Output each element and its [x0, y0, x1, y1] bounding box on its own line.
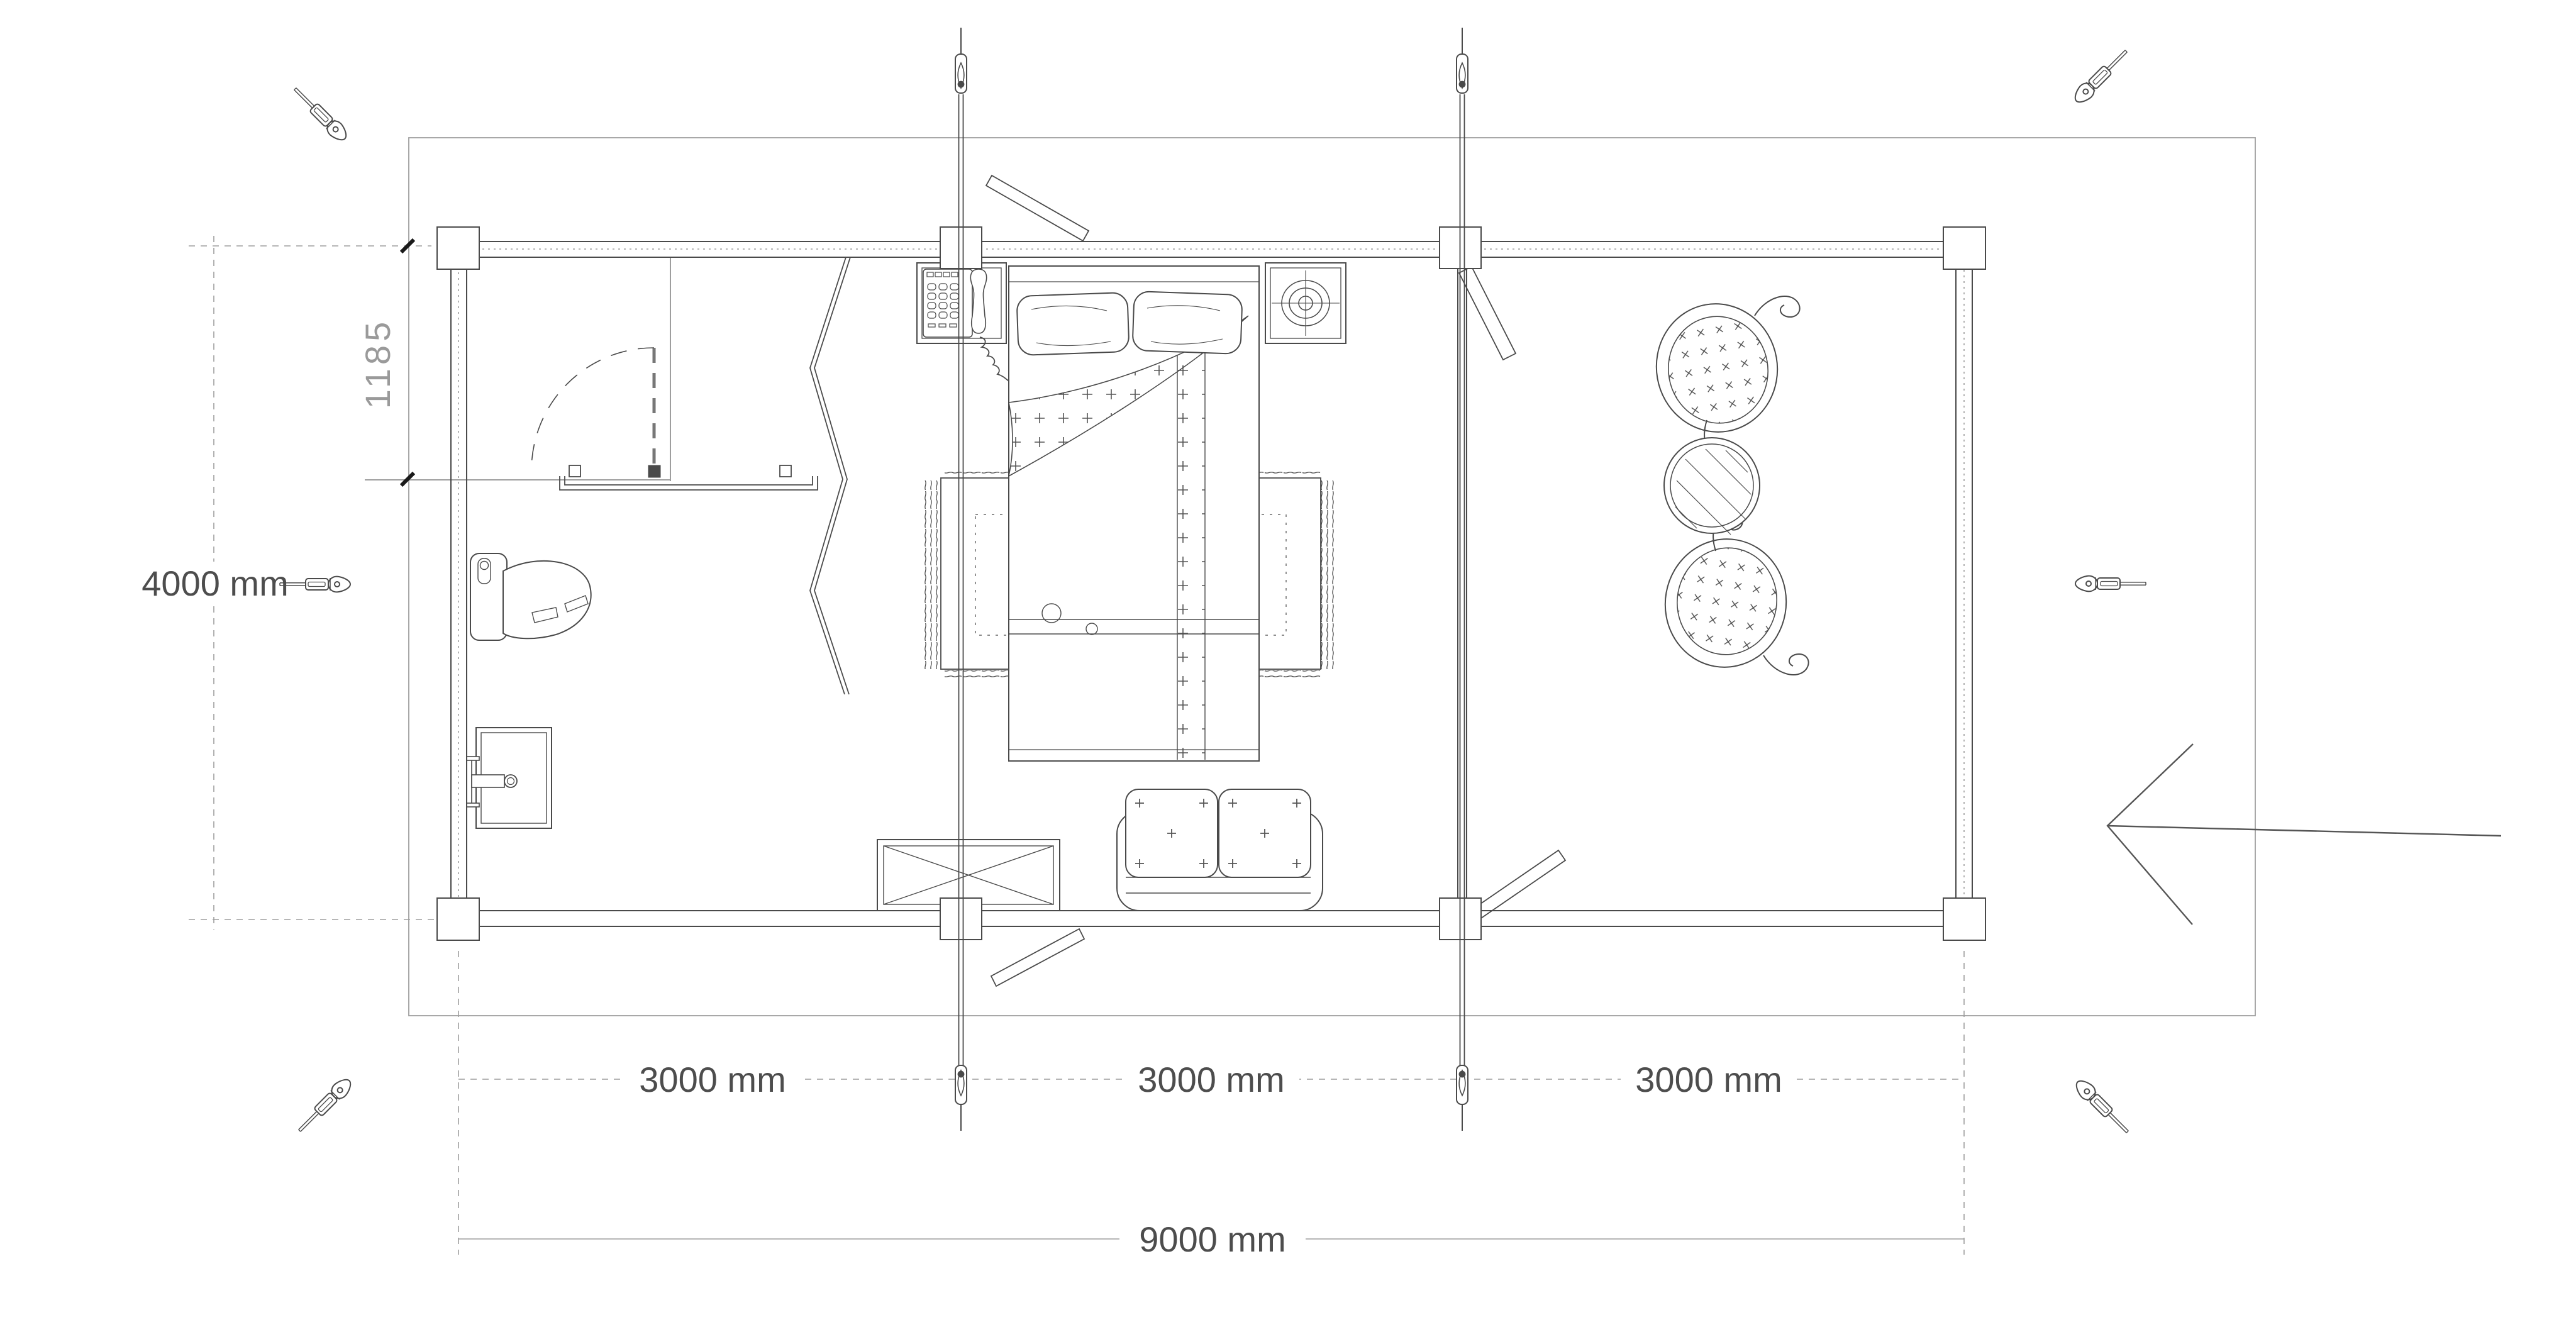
sofa [1117, 789, 1323, 911]
dimension-label-9000: 9000 mm [1139, 1219, 1285, 1259]
door-swing-arc [531, 348, 654, 470]
blanket-stripe [1177, 352, 1205, 760]
rug-fringe-right [1321, 480, 1337, 669]
dimension-label-1185: 1185 [358, 318, 397, 409]
side-table [1664, 438, 1760, 535]
nightstand-right [1265, 263, 1346, 343]
wall-partition [1458, 257, 1467, 911]
bathroom-door [531, 348, 818, 490]
dimension-label-4000: 4000 mm [142, 564, 288, 603]
window-sash-top [986, 175, 1089, 241]
tie-rod-anchor-icon [955, 1065, 967, 1131]
bed [1009, 266, 1259, 761]
dimension-labels: 1185 4000 mm 3000 mm 3000 mm 3000 mm 900… [128, 240, 1797, 1259]
rug-fringe-left [924, 480, 941, 669]
corner-post-bl [437, 898, 479, 940]
door-hinge [648, 465, 660, 477]
turnbuckle-icon [2071, 46, 2132, 107]
bathroom-partition [365, 257, 670, 481]
dimension-ticks-1185 [401, 240, 414, 486]
chair-top [1646, 294, 1800, 457]
sink [467, 728, 552, 828]
module-post-top-1 [940, 227, 982, 269]
door-threshold [560, 465, 818, 490]
corner-post-tl [437, 227, 479, 269]
module-post-bottom-1 [940, 898, 982, 940]
turnbuckle-icon [294, 1075, 355, 1136]
tie-rod-anchor-icon [1457, 1065, 1468, 1131]
wall-right [1956, 227, 1972, 940]
tie-rod-anchor-icon [955, 28, 967, 93]
partition-door-leaf-top [1459, 267, 1516, 360]
tie-rod-anchor-icon [1457, 28, 1468, 93]
corner-post-br [1943, 898, 1985, 940]
dimension-label-3000-1: 3000 mm [639, 1060, 786, 1099]
entrance-arrow-icon [2107, 744, 2501, 924]
dimension-label-3000-2: 3000 mm [1138, 1060, 1284, 1099]
turnbuckle-icon [2075, 576, 2146, 592]
toilet [470, 553, 591, 640]
floor-plan-canvas: 1185 4000 mm 3000 mm 3000 mm 3000 mm 900… [0, 0, 2576, 1327]
pillow-right [1132, 291, 1242, 354]
pillow-left [1016, 292, 1129, 355]
chair-bottom [1655, 514, 1809, 677]
turnbuckle-icon [2072, 1077, 2133, 1138]
partition-door-leaf-bottom [1474, 850, 1565, 918]
dimension-label-3000-3: 3000 mm [1635, 1060, 1782, 1099]
folding-screen [810, 257, 850, 694]
wall-bottom [437, 911, 1985, 926]
turnbuckle-icon [290, 84, 351, 145]
entry-door-leaf [991, 929, 1084, 986]
floor-plan-page: 1185 4000 mm 3000 mm 3000 mm 3000 mm 900… [0, 0, 2576, 1327]
corner-post-tr [1943, 227, 1985, 269]
